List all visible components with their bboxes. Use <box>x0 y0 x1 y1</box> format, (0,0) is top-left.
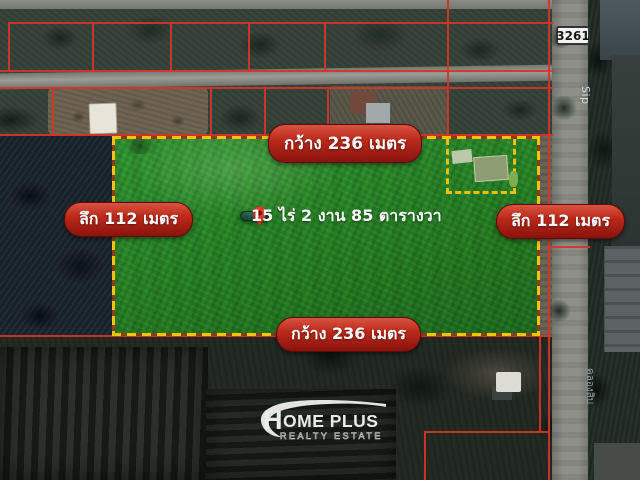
green-roof-house <box>473 155 509 182</box>
plowed-rows-bottom-left <box>0 347 208 480</box>
water-patch-top-right <box>600 0 640 60</box>
cleared-land-patch-left <box>48 87 208 135</box>
tree-cluster <box>120 138 160 154</box>
hedge <box>509 171 518 187</box>
route-shield-3261: 3261 <box>556 26 590 45</box>
grey-roof-house <box>366 103 390 123</box>
white-building <box>88 103 117 135</box>
logo-name: OME PLUS <box>283 411 378 431</box>
road-name-sip: Sip <box>579 86 592 105</box>
parcel-line <box>0 87 553 89</box>
grey-building-right <box>604 246 640 352</box>
home-plus-logo: H OME PLUS REALTY ESTATE <box>250 396 390 442</box>
parcel-line <box>170 22 172 72</box>
parcel-line <box>264 87 266 136</box>
width-label-bottom: กว้าง 236 เมตร <box>276 317 421 352</box>
parcel-line <box>248 22 250 72</box>
road-edge-line <box>548 0 550 480</box>
parcel-line <box>0 70 553 72</box>
white-roof-house <box>496 372 521 392</box>
tree-cluster <box>550 96 578 120</box>
road-name-khlong-sip: คลองสิบ <box>582 368 597 404</box>
satellite-map: กว้าง 236 เมตร กว้าง 236 เมตร ลึก 112 เม… <box>0 0 640 480</box>
width-label-top: กว้าง 236 เมตร <box>268 124 422 163</box>
depth-label-right: ลึก 112 เมตร <box>496 204 625 239</box>
parcel-line <box>447 0 449 136</box>
small-shed <box>451 149 472 164</box>
parcel-line <box>52 87 54 136</box>
parcel-line <box>539 335 541 432</box>
parcel-line <box>8 22 553 24</box>
parcel-line <box>324 22 326 72</box>
area-label-text: 15 ไร่ 2 งาน 85 ตารางวา <box>251 204 442 229</box>
parcel-line <box>424 431 426 480</box>
depth-label-left: ลึก 112 เมตร <box>64 202 193 237</box>
parcel-line <box>424 431 550 433</box>
road-vertical-right <box>552 0 590 480</box>
paved-corner-bottom-right <box>594 443 640 480</box>
road-horizontal-top <box>0 0 575 9</box>
parcel-line <box>210 87 212 136</box>
parcel-line <box>548 246 590 248</box>
logo-subtitle: REALTY ESTATE <box>280 431 383 441</box>
parcel-line <box>8 22 10 72</box>
area-label: 15 ไร่ 2 งาน 85 ตารางวา <box>240 211 268 221</box>
parcel-line <box>92 22 94 72</box>
